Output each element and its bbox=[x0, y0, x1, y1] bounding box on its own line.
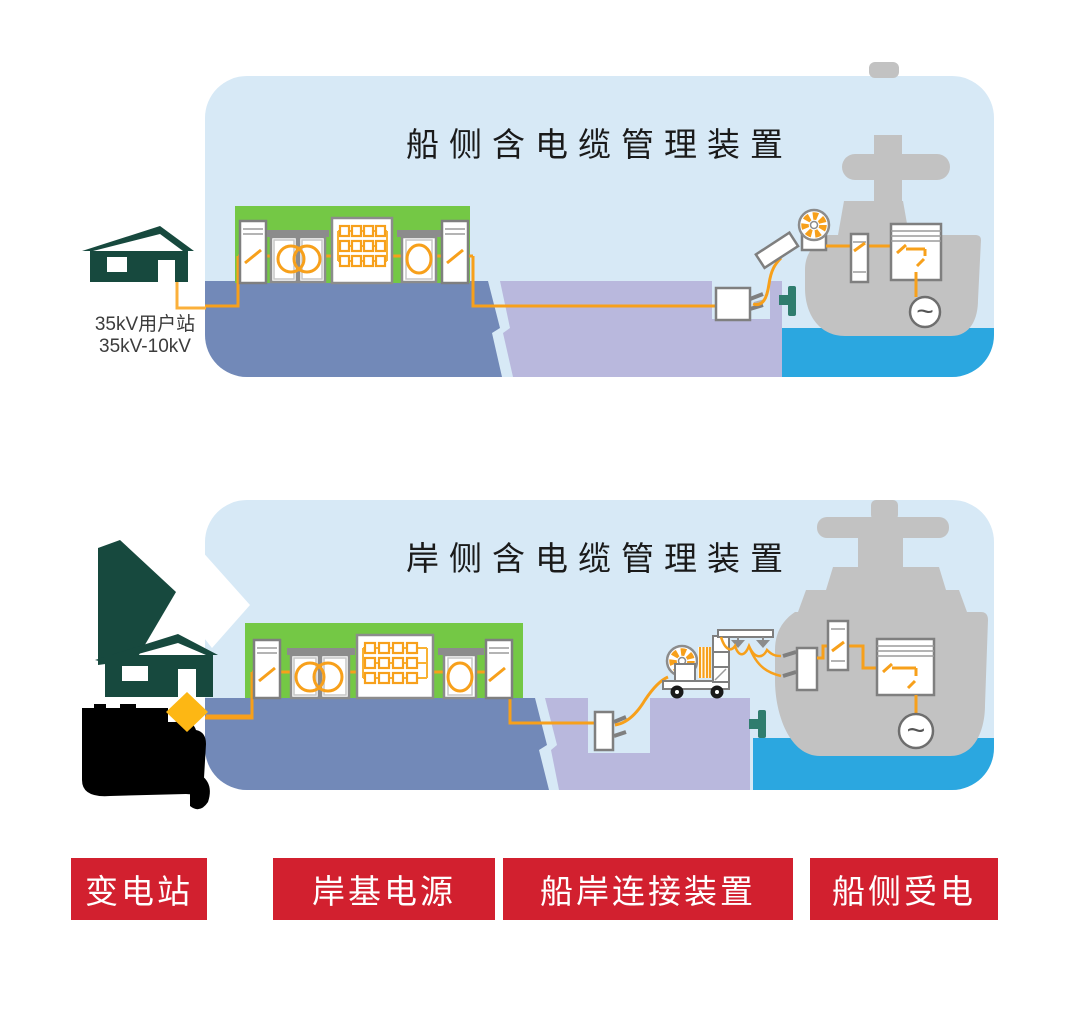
panel-title: 船侧含电缆管理装置 bbox=[205, 118, 994, 166]
shore-platform bbox=[205, 281, 502, 377]
transformer-icon bbox=[267, 230, 329, 282]
frequency-converter-icon bbox=[332, 218, 392, 283]
legend-shore-power: 岸基电源 bbox=[273, 858, 495, 920]
panel-shore-side: ~ 岸侧含电缆管理装置 bbox=[205, 500, 994, 790]
substation-house-icon bbox=[80, 215, 210, 315]
generator-wave-symbol: ~ bbox=[907, 712, 926, 748]
ship-generator-icon: ~ bbox=[910, 295, 940, 328]
legend-ship-side-reception: 船侧受电 bbox=[810, 858, 998, 920]
switchgear-cabinet-icon bbox=[442, 221, 468, 283]
bollard-icon bbox=[749, 710, 766, 738]
legend-ship-shore-connection: 船岸连接装置 bbox=[503, 858, 793, 920]
substation-house-spire-icon bbox=[80, 518, 260, 818]
ship-switch-cabinet bbox=[828, 621, 848, 670]
crane-beam bbox=[718, 630, 773, 637]
substation-note-line2: 35kV-10kV bbox=[70, 336, 220, 358]
switchgear-cabinet-icon bbox=[240, 221, 266, 283]
transformer-icon bbox=[438, 648, 484, 698]
ship-switch-cabinet bbox=[851, 234, 868, 282]
transformer-icon bbox=[397, 230, 441, 282]
panel-ship-side: ~ 船侧含电缆管理装置 bbox=[205, 76, 994, 377]
cable-management-cart bbox=[663, 630, 781, 699]
ship-generator-icon: ~ bbox=[899, 712, 933, 748]
substation-note: 35kV用户站 35kV-10kV bbox=[70, 314, 220, 358]
shore-power-diagram: ~ 船侧含电缆管理装置 35kV用户站 35kV-10kV bbox=[0, 0, 1080, 1012]
generator-wave-symbol: ~ bbox=[916, 295, 934, 328]
frequency-converter-icon bbox=[357, 635, 433, 698]
transformer-icon bbox=[287, 648, 355, 698]
house-body bbox=[105, 655, 213, 697]
legend-substation: 变电站 bbox=[71, 858, 207, 920]
cable-tower bbox=[713, 636, 729, 682]
cable-stack-icon bbox=[698, 647, 711, 678]
switchgear-cabinet-icon bbox=[486, 640, 512, 698]
ship-main-switchboard bbox=[891, 224, 941, 280]
cable-reel-icon bbox=[667, 646, 697, 681]
house-window bbox=[122, 666, 148, 681]
cable-from-substation bbox=[208, 716, 252, 736]
cable-from-substation bbox=[177, 282, 206, 308]
panel-title: 岸侧含电缆管理装置 bbox=[205, 532, 994, 580]
substation-note-line1: 35kV用户站 bbox=[70, 314, 220, 336]
ship-receiving-box bbox=[797, 648, 817, 690]
ship-mast-tip bbox=[866, 60, 902, 78]
